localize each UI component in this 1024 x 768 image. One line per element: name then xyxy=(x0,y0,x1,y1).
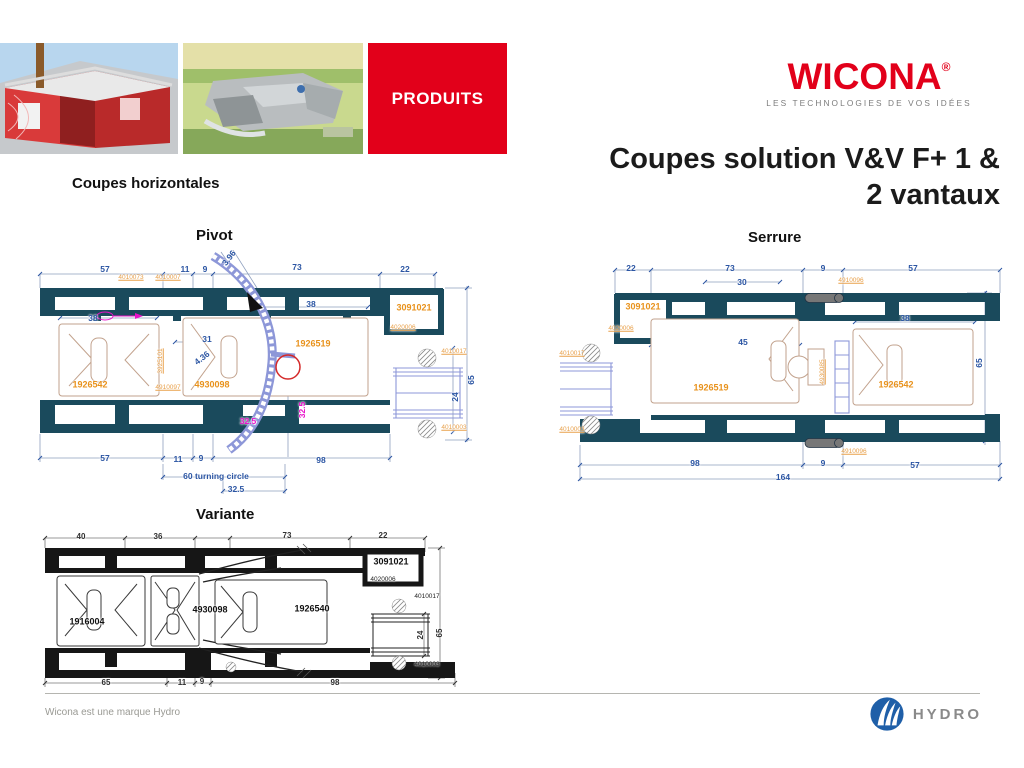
dimension-label: 30 xyxy=(737,278,746,287)
part-number-label: 4010073 xyxy=(118,275,143,282)
variante-linework xyxy=(35,530,460,695)
page-title: Coupes solution V&V F+ 1 & 2 vantaux xyxy=(480,141,1000,214)
dimension-label: 98 xyxy=(316,456,325,465)
part-number-label: 3091021 xyxy=(396,304,431,313)
part-number-label: 4010017 xyxy=(441,349,466,356)
footer-divider xyxy=(45,693,980,694)
pivot-drawing-title: Pivot xyxy=(196,227,233,244)
part-number-label: 4910096 xyxy=(838,278,863,285)
dimension-label: 9 xyxy=(200,678,204,686)
dimension-label: 38 xyxy=(900,314,909,323)
dimension-label: 36 xyxy=(154,533,163,541)
part-number-label: 4010003 xyxy=(414,662,439,669)
part-number-label: 3925101 xyxy=(158,348,165,373)
produits-banner: PRODUITS xyxy=(368,43,507,154)
dimension-label: 24 xyxy=(451,392,460,401)
part-number-label: 4930085 xyxy=(820,359,827,384)
booth-photo-art xyxy=(0,43,178,154)
variante-drawing-title: Variante xyxy=(196,506,254,523)
dimension-label: 73 xyxy=(283,532,292,540)
dimension-label: 22 xyxy=(626,264,635,273)
part-number-label: 4010017 xyxy=(414,594,439,601)
dimension-label: 73 xyxy=(725,264,734,273)
hydro-logo: HYDRO xyxy=(869,696,982,732)
dimension-label: 24 xyxy=(417,631,425,640)
dimension-label: 31 xyxy=(202,335,211,344)
dimension-label: 98 xyxy=(690,459,699,468)
part-number-label: 4010007 xyxy=(155,275,180,282)
dimension-label: 11 xyxy=(174,455,183,464)
wicona-logo-text: WICONA xyxy=(788,56,942,97)
factory-aerial-photo xyxy=(183,43,363,154)
part-number-label: 1926519 xyxy=(693,384,728,393)
dimension-label: 11 xyxy=(178,679,186,687)
part-number-label: 1926542 xyxy=(72,381,107,390)
dimension-label: 57 xyxy=(100,454,109,463)
dimension-label: 32.5 xyxy=(298,402,307,419)
part-number-label: 4930098 xyxy=(192,606,227,615)
part-number-label: 4020006 xyxy=(608,326,633,333)
dimension-label: 65 xyxy=(436,629,444,638)
dimension-label: 9 xyxy=(821,459,826,468)
section-label: Coupes horizontales xyxy=(72,175,220,192)
part-number-label: 4010017 xyxy=(559,351,584,358)
part-number-label: 1926542 xyxy=(878,381,913,390)
dimension-label: 73 xyxy=(292,263,301,272)
dimension-label: 45 xyxy=(738,338,747,347)
hydro-label: HYDRO xyxy=(913,706,982,723)
dimension-label: 60 turning circle xyxy=(183,472,249,481)
dimension-label: 65 xyxy=(102,679,111,687)
part-number-label: 4010003 xyxy=(559,427,584,434)
wicona-tagline: LES TECHNOLOGIES DE VOS IDÉES xyxy=(758,98,980,108)
produits-label: PRODUITS xyxy=(392,89,484,109)
part-number-label: 4910096 xyxy=(841,449,866,456)
dimension-label: 38 xyxy=(88,314,97,323)
dimension-label: 9 xyxy=(199,454,204,463)
dimension-label: 65 xyxy=(467,375,476,384)
registered-mark: ® xyxy=(942,60,951,74)
part-number-label: 4910097 xyxy=(155,385,180,392)
dimension-label: 9 xyxy=(203,265,208,274)
hydro-icon xyxy=(869,696,905,732)
dimension-label: 57 xyxy=(100,265,109,274)
dimension-label: 32.5 xyxy=(228,485,245,494)
slide: PRODUITS WICONA® LES TECHNOLOGIES DE VOS… xyxy=(0,0,1024,768)
pivot-section-drawing: 571193.967322401007340100073838309102140… xyxy=(35,250,480,505)
dimension-label: 40 xyxy=(77,533,86,541)
dimension-label: 38 xyxy=(306,300,315,309)
dimension-label: 65 xyxy=(975,358,984,367)
dimension-label: 98 xyxy=(331,679,340,687)
wicona-logo: WICONA® LES TECHNOLOGIES DE VOS IDÉES xyxy=(758,58,980,108)
part-number-label: 4010003 xyxy=(441,425,466,432)
dimension-label: 22 xyxy=(379,532,388,540)
part-number-label: 4930098 xyxy=(194,381,229,390)
footer-note: Wicona est une marque Hydro xyxy=(45,707,180,718)
dimension-label: 57 xyxy=(908,264,917,273)
page-title-line1: Coupes solution V&V F+ 1 & xyxy=(480,141,1000,177)
booth-photo xyxy=(0,43,178,154)
part-number-label: 1916004 xyxy=(69,618,104,627)
page-title-line2: 2 vantaux xyxy=(480,177,1000,213)
serrure-section-drawing: 2273957304910096309102140200063845401001… xyxy=(555,255,1005,495)
part-number-label: 1926540 xyxy=(294,605,329,614)
dimension-label: 9 xyxy=(821,264,826,273)
part-number-label: 4020006 xyxy=(370,577,395,584)
variante-section-drawing: 4036732230910214020006401001749300981926… xyxy=(35,530,460,695)
part-number-label: 1926519 xyxy=(295,340,330,349)
part-number-label: 3091021 xyxy=(625,303,660,312)
dimension-label: 57 xyxy=(910,461,919,470)
dimension-label: 11 xyxy=(181,265,190,274)
part-number-label: 4020006 xyxy=(390,325,415,332)
factory-photo-art xyxy=(183,43,363,154)
dimension-label: 22 xyxy=(400,265,409,274)
dimension-label: 32.5 xyxy=(240,417,257,426)
serrure-drawing-title: Serrure xyxy=(748,229,801,246)
part-number-label: 3091021 xyxy=(373,558,408,567)
pivot-linework xyxy=(35,250,480,505)
dimension-label: 164 xyxy=(776,473,790,482)
serrure-linework xyxy=(555,255,1005,495)
